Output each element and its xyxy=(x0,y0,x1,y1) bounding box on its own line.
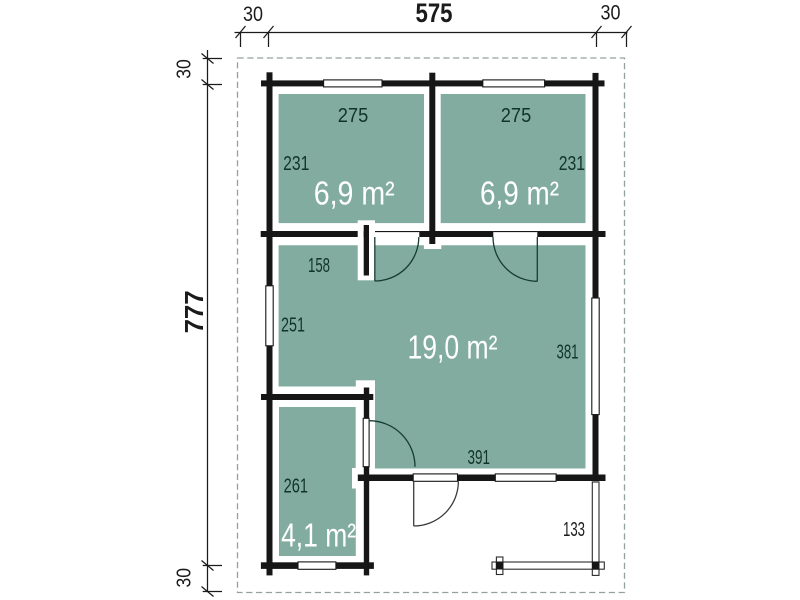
svg-text:4,1 m²: 4,1 m² xyxy=(281,517,356,554)
svg-text:30: 30 xyxy=(173,568,195,588)
svg-text:6,9 m²: 6,9 m² xyxy=(480,174,559,211)
svg-text:275: 275 xyxy=(501,105,532,127)
svg-text:30: 30 xyxy=(243,3,263,26)
svg-text:251: 251 xyxy=(281,315,305,337)
svg-text:575: 575 xyxy=(416,0,453,28)
svg-text:30: 30 xyxy=(601,1,621,24)
svg-text:391: 391 xyxy=(467,447,490,469)
svg-text:158: 158 xyxy=(308,255,330,277)
svg-text:19,0 m²: 19,0 m² xyxy=(408,328,498,365)
svg-text:133: 133 xyxy=(563,519,585,541)
svg-text:6,9 m²: 6,9 m² xyxy=(314,174,395,211)
svg-text:231: 231 xyxy=(559,153,585,175)
svg-text:381: 381 xyxy=(557,342,579,364)
svg-text:261: 261 xyxy=(284,476,308,498)
svg-text:231: 231 xyxy=(283,153,309,175)
svg-text:30: 30 xyxy=(174,59,196,79)
svg-text:777: 777 xyxy=(179,290,209,333)
svg-text:275: 275 xyxy=(338,105,369,127)
